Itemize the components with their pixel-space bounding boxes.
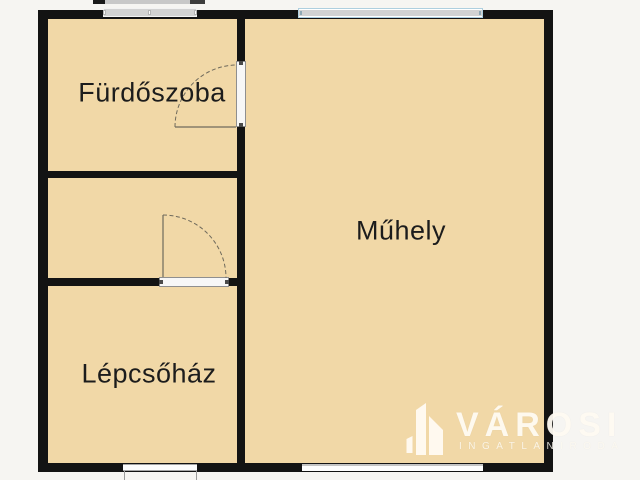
- door-bathroom: [236, 61, 246, 127]
- wall-left: [38, 10, 48, 472]
- door-hinge: [225, 280, 229, 284]
- stair-entry-line: [124, 471, 125, 480]
- window-tick: [148, 10, 151, 15]
- window-tick: [103, 10, 106, 15]
- floorplan-screenshot: { "floorplan": { "rooms": [ { "id": "fur…: [0, 0, 640, 480]
- window-tick: [194, 10, 197, 15]
- watermark-subtitle: INGATLANIRODA: [459, 441, 624, 452]
- door-middle-room: [159, 277, 229, 287]
- window-tick: [300, 11, 302, 15]
- wall-bathroom-bottom: [48, 171, 237, 178]
- stair-entry-line: [196, 471, 197, 480]
- window-bathroom-top: [103, 8, 197, 17]
- watermark-brand: VÁROSI: [456, 406, 622, 445]
- wall-right: [544, 10, 553, 472]
- room-label-lepcsohaz: Lépcsőház: [81, 359, 216, 390]
- room-label-furdoszoba: Fürdőszoba: [78, 78, 226, 109]
- door-hinge: [239, 123, 243, 127]
- window-tick: [479, 11, 481, 15]
- top-edge-artifact: [93, 0, 105, 4]
- top-edge-artifact: [105, 0, 190, 4]
- opening-staircase-bottom: [123, 464, 197, 471]
- room-label-muhely: Műhely: [356, 216, 446, 247]
- door-hinge: [159, 280, 163, 284]
- top-edge-artifact: [190, 0, 205, 4]
- window-workshop-top: [298, 8, 483, 18]
- window-workshop-bottom: [302, 464, 483, 471]
- door-hinge: [239, 61, 243, 65]
